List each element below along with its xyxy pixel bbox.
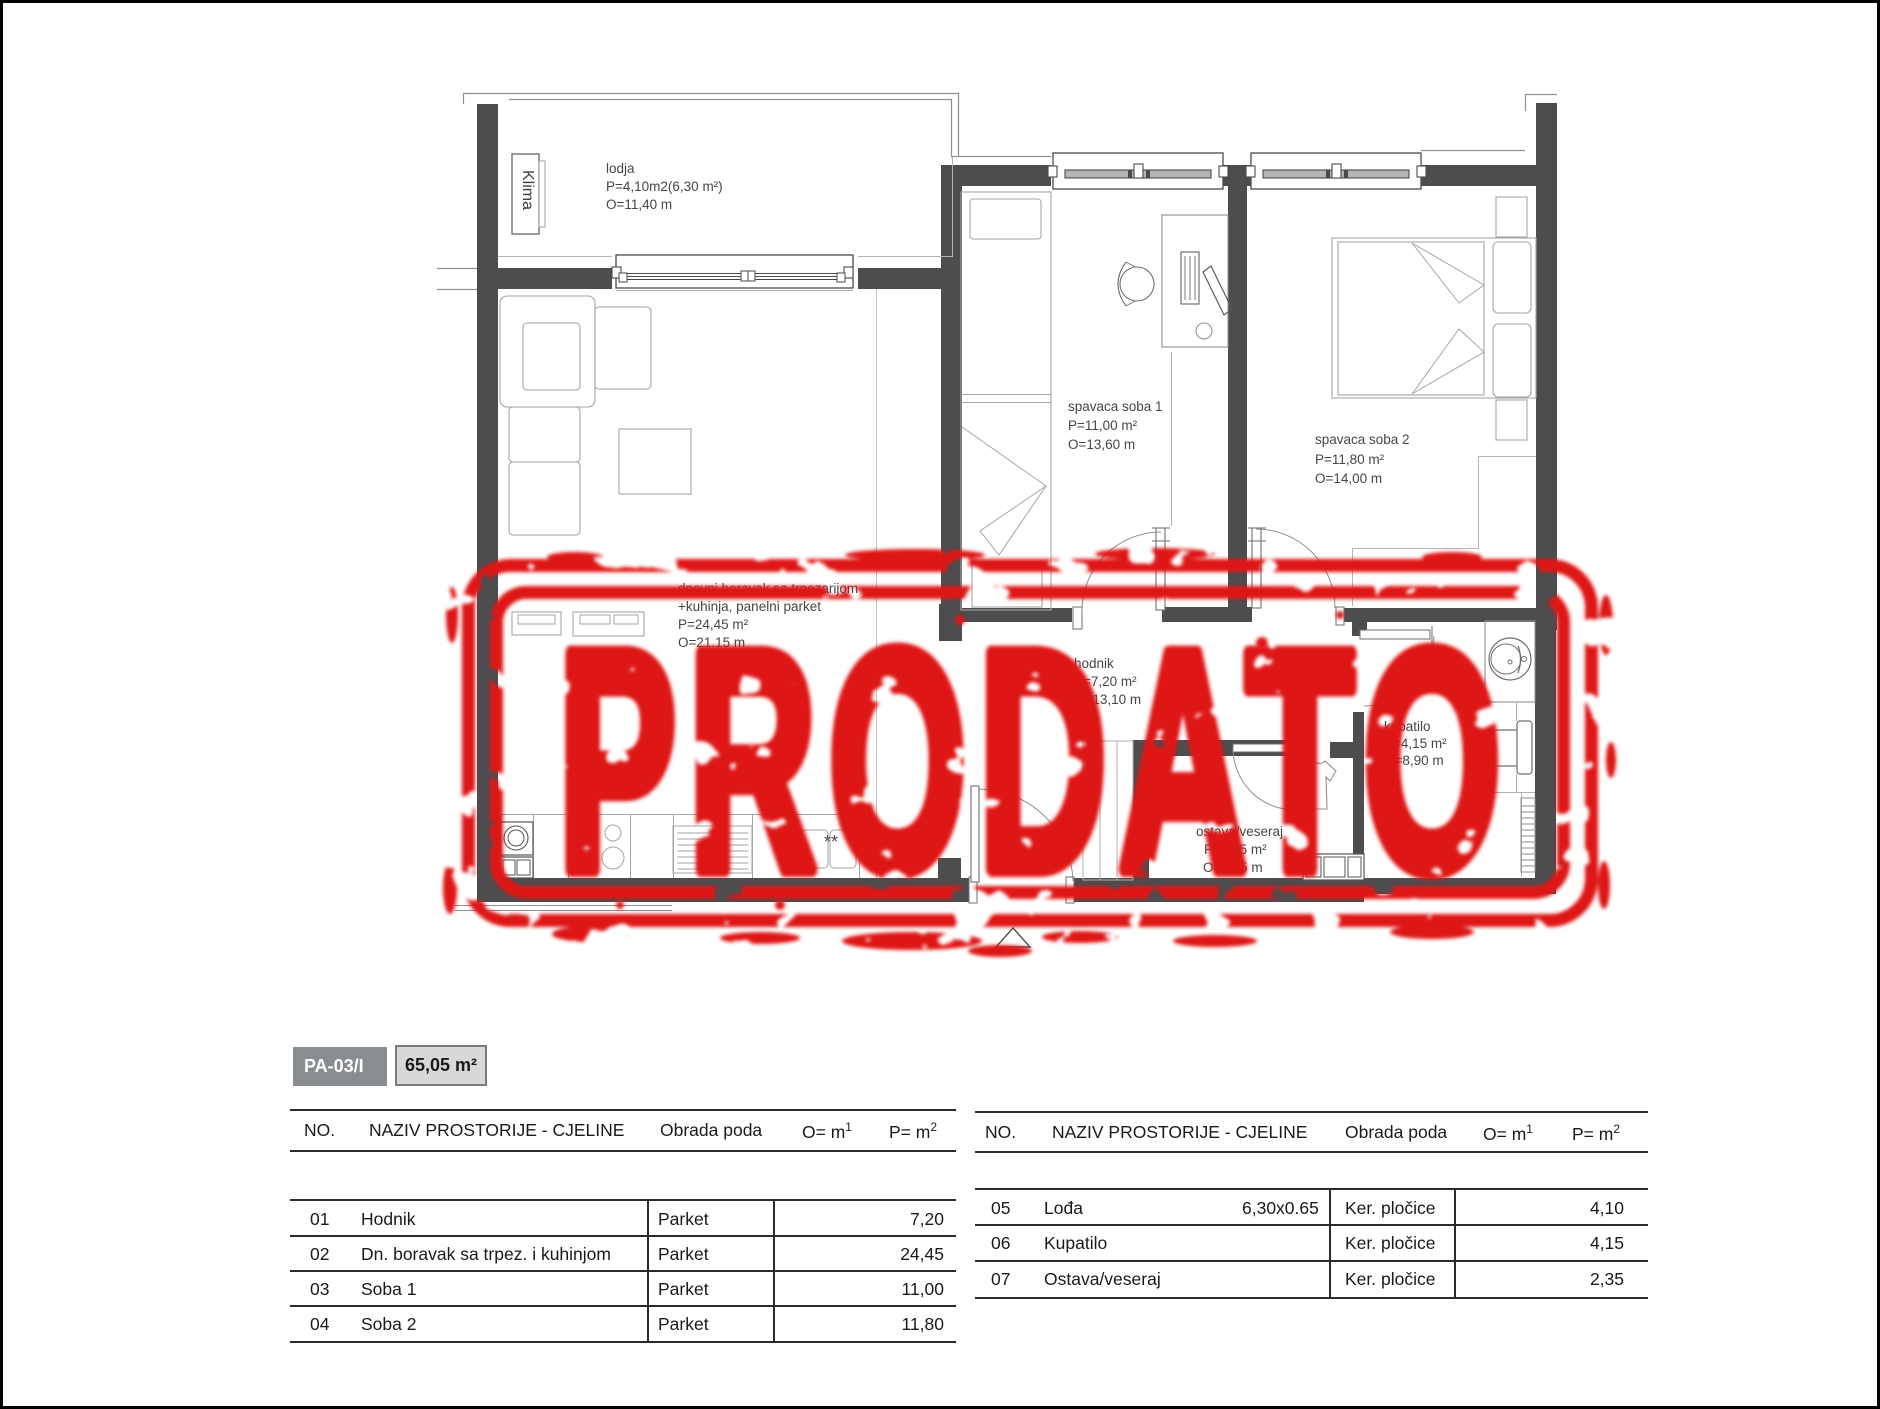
svg-text:spavaca soba 1: spavaca soba 1: [1068, 399, 1163, 414]
svg-text:O=11,40 m: O=11,40 m: [606, 197, 672, 212]
svg-text:P=11,00 m²: P=11,00 m²: [1068, 418, 1138, 433]
svg-text:O=13,60 m: O=13,60 m: [1068, 437, 1135, 452]
svg-text:Klima: Klima: [519, 170, 536, 210]
svg-text:P=11,80 m²: P=11,80 m²: [1315, 452, 1385, 467]
svg-text:O=14,00 m: O=14,00 m: [1315, 471, 1382, 486]
svg-text:P=4,10m2(6,30 m²): P=4,10m2(6,30 m²): [606, 179, 723, 194]
svg-text:spavaca soba 2: spavaca soba 2: [1315, 432, 1410, 447]
svg-text:lodja: lodja: [606, 161, 635, 176]
svg-text:PRODATO: PRODATO: [558, 587, 1513, 936]
